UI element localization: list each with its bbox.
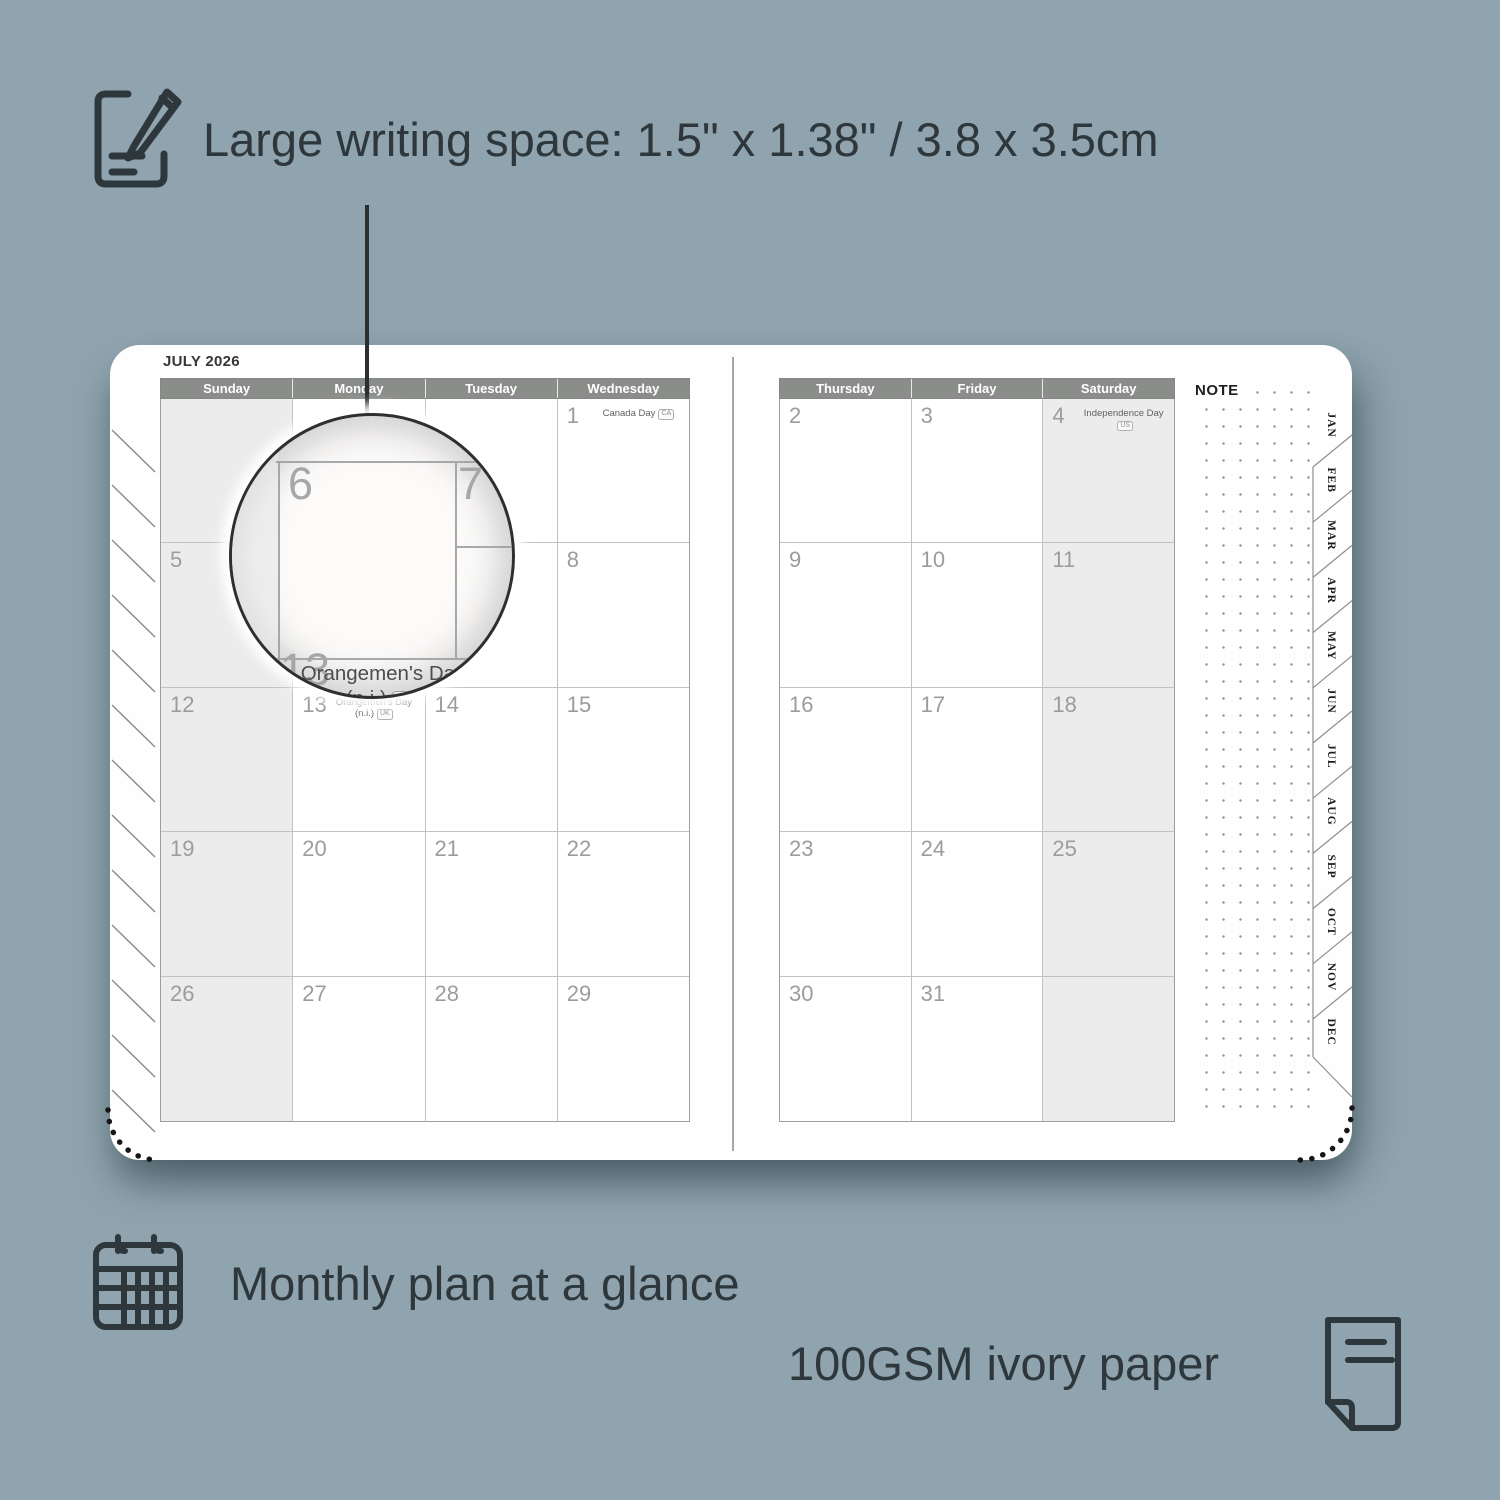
calendar-cell: 4Independence DayUS (1043, 399, 1174, 543)
day-header-row: ThursdayFridaySaturday (779, 378, 1175, 399)
calendar-cell: 24 (912, 832, 1044, 976)
callout-connector-line (365, 205, 369, 418)
month-tab: JUL (1325, 744, 1337, 769)
tab-separator (1313, 932, 1352, 964)
calendar-cell: 15 (558, 688, 689, 832)
page-edge-hatch-line (112, 980, 155, 1022)
day-number: 4 (1052, 403, 1064, 429)
page-edge-hatch-line (112, 870, 155, 912)
calendar-cell: 9 (780, 543, 912, 687)
day-number: 23 (789, 836, 813, 862)
day-number: 24 (921, 836, 945, 862)
page-edge-hatch-line (112, 1090, 155, 1132)
tab-separator (1313, 766, 1352, 798)
notepad-pencil-icon (90, 80, 190, 192)
calendar-week-row: 3031 (780, 977, 1174, 1121)
calendar-cell: 14 (426, 688, 558, 832)
day-number: 20 (302, 836, 326, 862)
calendar-cell: 18 (1043, 688, 1174, 832)
holiday-label: Canada DayCA (590, 408, 687, 420)
product-image: Large writing space: 1.5" x 1.38" / 3.8 … (0, 0, 1500, 1500)
calendar-cell: 25 (1043, 832, 1174, 976)
day-number: 30 (789, 981, 813, 1007)
month-tab: APR (1325, 577, 1337, 604)
day-number: 19 (170, 836, 194, 862)
month-tab: MAY (1325, 631, 1337, 660)
calendar-cell: 19 (161, 832, 293, 976)
magnified-grid-line (455, 546, 515, 548)
calendar-cell: 11 (1043, 543, 1174, 687)
month-title: JULY 2026 (163, 353, 240, 370)
day-number: 9 (789, 547, 801, 573)
note-label: NOTE (1195, 382, 1242, 399)
day-number: 3 (921, 403, 933, 429)
day-number: 15 (567, 692, 591, 718)
month-tab: DEC (1325, 1019, 1337, 1046)
month-tab: OCT (1325, 908, 1337, 936)
calendar-cell: 1Canada DayCA (558, 399, 689, 543)
page-edge-hatch-line (112, 595, 155, 637)
day-header-row: SundayMondayTuesdayWednesday (160, 378, 690, 399)
magnified-day-7: 7 (458, 458, 483, 510)
holiday-country-badge: US (1117, 421, 1133, 432)
page-edge-hatch-line (112, 1035, 155, 1077)
calendar-cell: 3 (912, 399, 1044, 543)
day-number: 22 (567, 836, 591, 862)
day-header: Monday (292, 379, 424, 398)
holiday-label: Orangemen's Day(n.i.)UK (325, 697, 422, 720)
magnified-grid-line (455, 461, 457, 659)
month-tab: JUN (1325, 688, 1337, 713)
month-tab: FEB (1325, 468, 1337, 493)
calendar-cell: 23 (780, 832, 912, 976)
calendar-cell: 10 (912, 543, 1044, 687)
magnified-holiday-name: Orangemen's Day (272, 662, 494, 686)
page-edge-hatch-line (112, 540, 155, 582)
day-number: 18 (1052, 692, 1076, 718)
day-number: 10 (921, 547, 945, 573)
calendar-cell: 31 (912, 977, 1044, 1121)
tab-separator (1313, 601, 1352, 633)
calendar-week-row: 26272829 (161, 977, 689, 1121)
tab-strip-end (1313, 1057, 1352, 1097)
paper-caption: 100GSM ivory paper (788, 1336, 1219, 1391)
tab-separator (1313, 711, 1352, 743)
day-header: Sunday (161, 379, 292, 398)
day-number: 8 (567, 547, 579, 573)
calendar-grid-right: 234Independence DayUS9101116171823242530… (779, 399, 1175, 1122)
day-header: Tuesday (425, 379, 557, 398)
day-number: 11 (1052, 547, 1075, 573)
day-number: 26 (170, 981, 194, 1007)
month-tab: AUG (1325, 797, 1337, 826)
tab-separator (1313, 490, 1352, 522)
calendar-icon (88, 1233, 188, 1333)
day-number: 5 (170, 547, 182, 573)
holiday-country-badge: CA (658, 409, 674, 420)
calendar-cell: 16 (780, 688, 912, 832)
calendar-week-row: 19202122 (161, 832, 689, 976)
calendar-cell (1043, 977, 1174, 1121)
page-edge-hatch-line (112, 705, 155, 747)
corner-stitch-dots (108, 1110, 158, 1160)
calendar-cell: 21 (426, 832, 558, 976)
tab-separator (1313, 435, 1352, 467)
day-number: 16 (789, 692, 813, 718)
calendar-cell: 2 (780, 399, 912, 543)
calendar-cell: 13Orangemen's Day(n.i.)UK (293, 688, 425, 832)
day-number: 29 (567, 981, 591, 1007)
paper-sheet-icon (1322, 1316, 1404, 1432)
calendar-cell: 26 (161, 977, 293, 1121)
magnified-day-6: 6 (288, 458, 313, 510)
tab-separator (1313, 821, 1352, 853)
calendar-week-row: 234Independence DayUS (780, 399, 1174, 543)
day-number: 28 (435, 981, 459, 1007)
month-tab: JAN (1325, 412, 1337, 437)
month-tab: NOV (1325, 963, 1337, 992)
month-tab: SEP (1325, 855, 1337, 879)
right-page: ThursdayFridaySaturday 234Independence D… (779, 378, 1175, 1122)
page-edge-hatch-line (112, 650, 155, 692)
day-header: Saturday (1042, 379, 1174, 398)
writing-space-caption: Large writing space: 1.5" x 1.38" / 3.8 … (203, 112, 1159, 167)
month-tab: MAR (1325, 520, 1337, 550)
calendar-cell: 28 (426, 977, 558, 1121)
magnifier-circle: 6 7 13 Orangemen's Day (n.i.)UK (229, 413, 515, 699)
calendar-week-row: 91011 (780, 543, 1174, 687)
tab-separator (1313, 877, 1352, 909)
day-header: Wednesday (557, 379, 689, 398)
day-number: 25 (1052, 836, 1076, 862)
calendar-cell: 27 (293, 977, 425, 1121)
magnified-sunday-shading (232, 416, 278, 699)
note-dot-grid (1193, 381, 1310, 1122)
calendar-week-row: 1213Orangemen's Day(n.i.)UK1415 (161, 688, 689, 832)
day-header: Friday (911, 379, 1043, 398)
calendar-week-row: 161718 (780, 688, 1174, 832)
calendar-week-row: 232425 (780, 832, 1174, 976)
calendar-cell: 22 (558, 832, 689, 976)
tab-separator (1313, 545, 1352, 577)
tab-separator (1313, 987, 1352, 1019)
calendar-cell: 8 (558, 543, 689, 687)
day-number: 12 (170, 692, 194, 718)
calendar-cell: 20 (293, 832, 425, 976)
magnified-grid-line (244, 658, 496, 660)
magnified-holiday-suffix: (n.i.) (346, 687, 387, 699)
page-edge-hatch-line (112, 815, 155, 857)
day-number: 31 (921, 981, 945, 1007)
page-edge-hatch-line (112, 760, 155, 802)
tab-separator (1313, 656, 1352, 688)
day-number: 2 (789, 403, 801, 429)
day-header: Thursday (780, 379, 911, 398)
day-number: 27 (302, 981, 326, 1007)
holiday-country-badge: UK (377, 709, 393, 720)
day-number: 21 (435, 836, 459, 862)
calendar-cell: 29 (558, 977, 689, 1121)
day-number: 17 (921, 692, 945, 718)
page-edge-hatch-line (112, 485, 155, 527)
page-edge-hatch-line (112, 925, 155, 967)
calendar-cell: 12 (161, 688, 293, 832)
calendar-cell: 17 (912, 688, 1044, 832)
page-edge-hatch-line (112, 430, 155, 472)
holiday-label: Independence DayUS (1075, 408, 1172, 431)
calendar-cell: 30 (780, 977, 912, 1121)
monthly-plan-caption: Monthly plan at a glance (230, 1256, 740, 1311)
day-number: 1 (567, 403, 579, 429)
